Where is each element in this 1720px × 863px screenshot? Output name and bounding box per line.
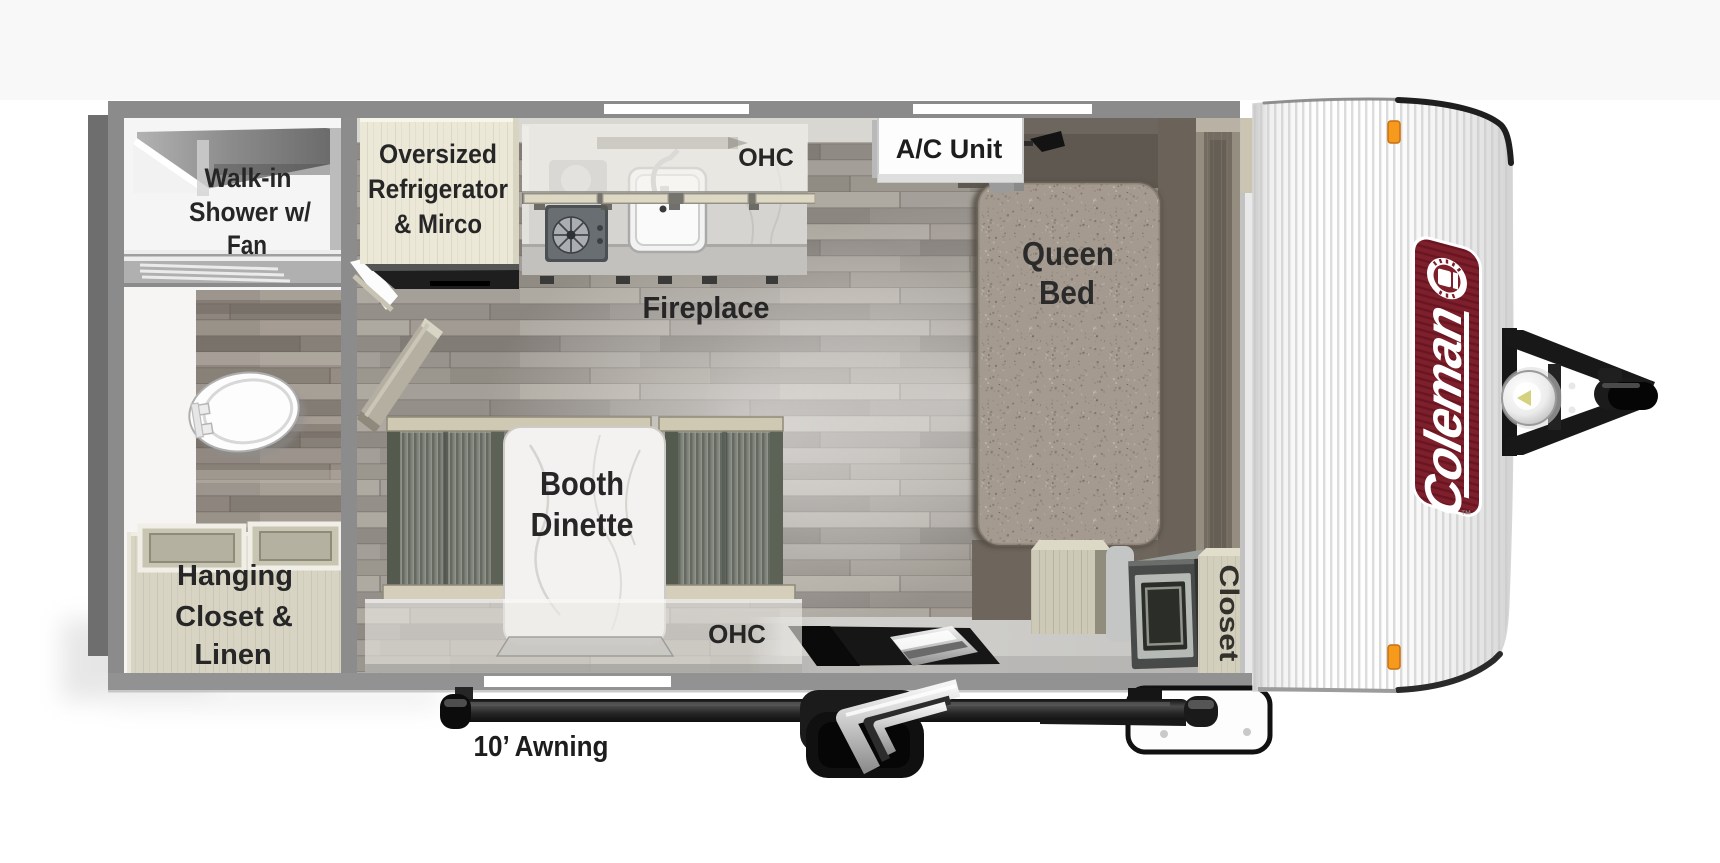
svg-text:Linen: Linen <box>194 639 271 671</box>
svg-text:Closet: Closet <box>1214 565 1244 662</box>
svg-text:Closet &: Closet & <box>175 601 293 633</box>
svg-text:™: ™ <box>1461 509 1472 521</box>
svg-text:Walk-in: Walk-in <box>205 163 292 193</box>
svg-text:Oversized: Oversized <box>379 139 497 169</box>
svg-text:Dinette: Dinette <box>531 506 634 543</box>
svg-text:Bed: Bed <box>1039 274 1095 311</box>
svg-text:Fireplace: Fireplace <box>643 290 770 325</box>
svg-text:10’ Awning: 10’ Awning <box>474 731 609 763</box>
svg-text:OHC: OHC <box>708 619 766 649</box>
svg-text:& Mirco: & Mirco <box>394 209 482 239</box>
svg-text:Fan: Fan <box>227 230 267 260</box>
svg-text:A/C Unit: A/C Unit <box>896 134 1002 164</box>
svg-text:Queen: Queen <box>1022 235 1114 272</box>
svg-text:OHC: OHC <box>738 144 794 172</box>
svg-text:Hanging: Hanging <box>177 560 293 592</box>
svg-text:Shower w/: Shower w/ <box>189 197 311 227</box>
svg-text:Booth: Booth <box>540 465 624 502</box>
svg-text:Refrigerator: Refrigerator <box>368 174 508 204</box>
